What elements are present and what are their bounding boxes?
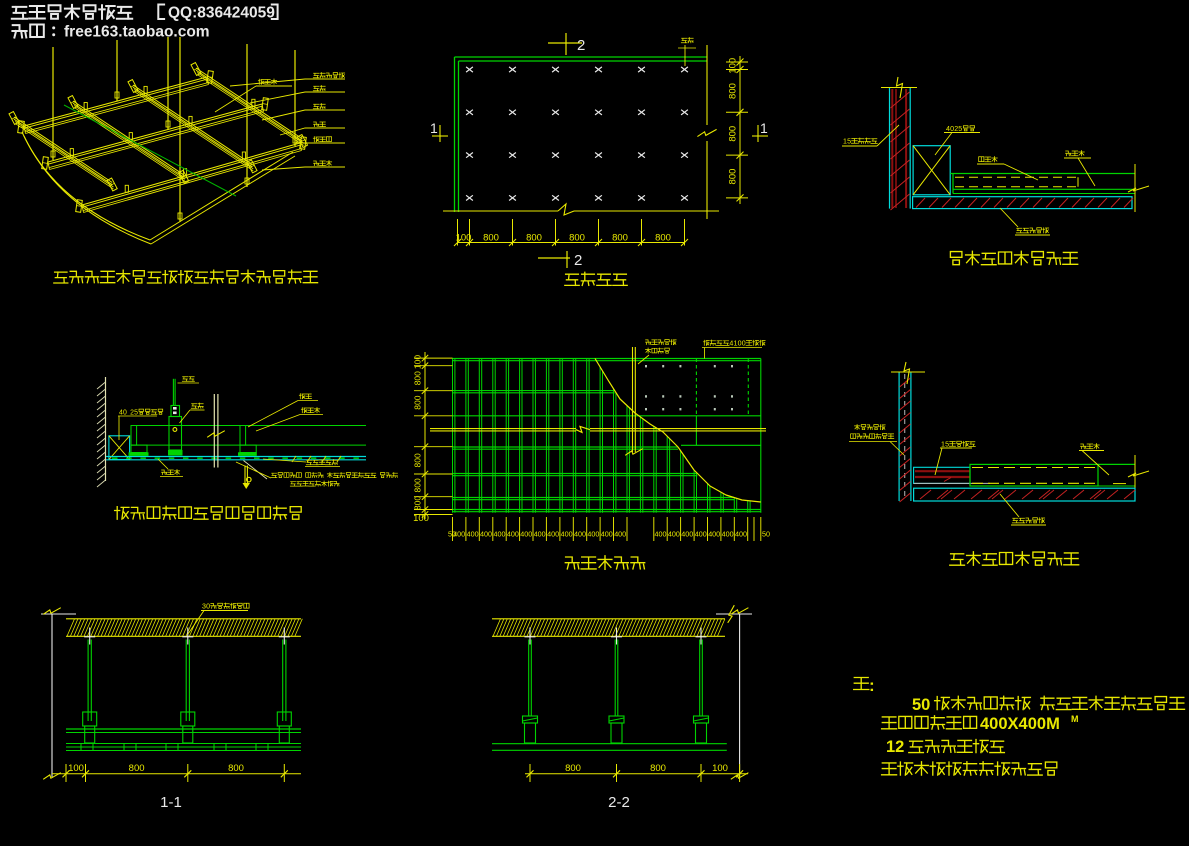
- svg-text:QQ:836424059: QQ:836424059: [168, 4, 275, 21]
- svg-text:0: 0: [206, 603, 210, 611]
- svg-text:5: 5: [847, 138, 851, 146]
- svg-text:100: 100: [456, 233, 472, 244]
- svg-text:400: 400: [735, 530, 747, 539]
- svg-text:800: 800: [650, 763, 666, 774]
- svg-text:800: 800: [228, 763, 244, 774]
- svg-text:400: 400: [467, 530, 479, 539]
- svg-text:800: 800: [655, 233, 671, 244]
- svg-text:400: 400: [668, 530, 680, 539]
- svg-text:400: 400: [507, 530, 519, 539]
- svg-text:400: 400: [587, 530, 599, 539]
- svg-text:5: 5: [958, 125, 962, 133]
- svg-text:100: 100: [413, 355, 423, 369]
- svg-text:800: 800: [612, 233, 628, 244]
- svg-text:1: 1: [430, 120, 438, 136]
- svg-text:800: 800: [413, 395, 423, 409]
- svg-text:100: 100: [413, 513, 429, 524]
- svg-text:400: 400: [708, 530, 720, 539]
- svg-text:400: 400: [681, 530, 693, 539]
- svg-text:100: 100: [728, 58, 739, 74]
- svg-text:400: 400: [534, 530, 546, 539]
- svg-text:free163.taobao.com: free163.taobao.com: [64, 23, 210, 40]
- svg-text:400: 400: [480, 530, 492, 539]
- svg-text:5: 5: [134, 409, 138, 416]
- svg-text:400: 400: [520, 530, 532, 539]
- svg-text:50: 50: [912, 696, 930, 714]
- svg-text:2: 2: [574, 252, 582, 269]
- svg-text:50: 50: [448, 530, 456, 539]
- svg-text:800: 800: [413, 453, 423, 467]
- svg-text:100: 100: [68, 763, 84, 774]
- svg-text:12: 12: [886, 738, 904, 756]
- svg-text:5: 5: [945, 441, 949, 449]
- svg-text:400: 400: [601, 530, 613, 539]
- svg-text:400: 400: [574, 530, 586, 539]
- svg-text:1-1: 1-1: [160, 794, 182, 811]
- svg-text:800: 800: [728, 169, 739, 185]
- svg-text:800: 800: [565, 763, 581, 774]
- svg-text:800: 800: [483, 233, 499, 244]
- svg-text:800: 800: [129, 763, 145, 774]
- svg-text:0: 0: [123, 409, 127, 416]
- svg-text:400: 400: [547, 530, 559, 539]
- svg-text:800: 800: [728, 126, 739, 142]
- svg-text:2-2: 2-2: [608, 794, 630, 811]
- svg-text:400X400M: 400X400M: [980, 715, 1060, 733]
- svg-text:800: 800: [413, 371, 423, 385]
- svg-text:400: 400: [722, 530, 734, 539]
- svg-text:0: 0: [742, 340, 746, 348]
- svg-text:400: 400: [494, 530, 506, 539]
- svg-text:400: 400: [614, 530, 626, 539]
- svg-text:M: M: [1071, 714, 1079, 724]
- svg-text:800: 800: [569, 233, 585, 244]
- svg-text:800: 800: [526, 233, 542, 244]
- svg-text:2: 2: [577, 37, 585, 54]
- svg-text:400: 400: [655, 530, 667, 539]
- svg-text:50: 50: [762, 530, 770, 539]
- svg-text:800: 800: [728, 83, 739, 99]
- svg-text:800: 800: [413, 496, 423, 510]
- svg-text:1: 1: [760, 120, 768, 136]
- svg-text:100: 100: [712, 763, 728, 774]
- svg-text:400: 400: [561, 530, 573, 539]
- svg-text::: :: [869, 676, 875, 695]
- svg-text:800: 800: [413, 478, 423, 492]
- svg-text:400: 400: [695, 530, 707, 539]
